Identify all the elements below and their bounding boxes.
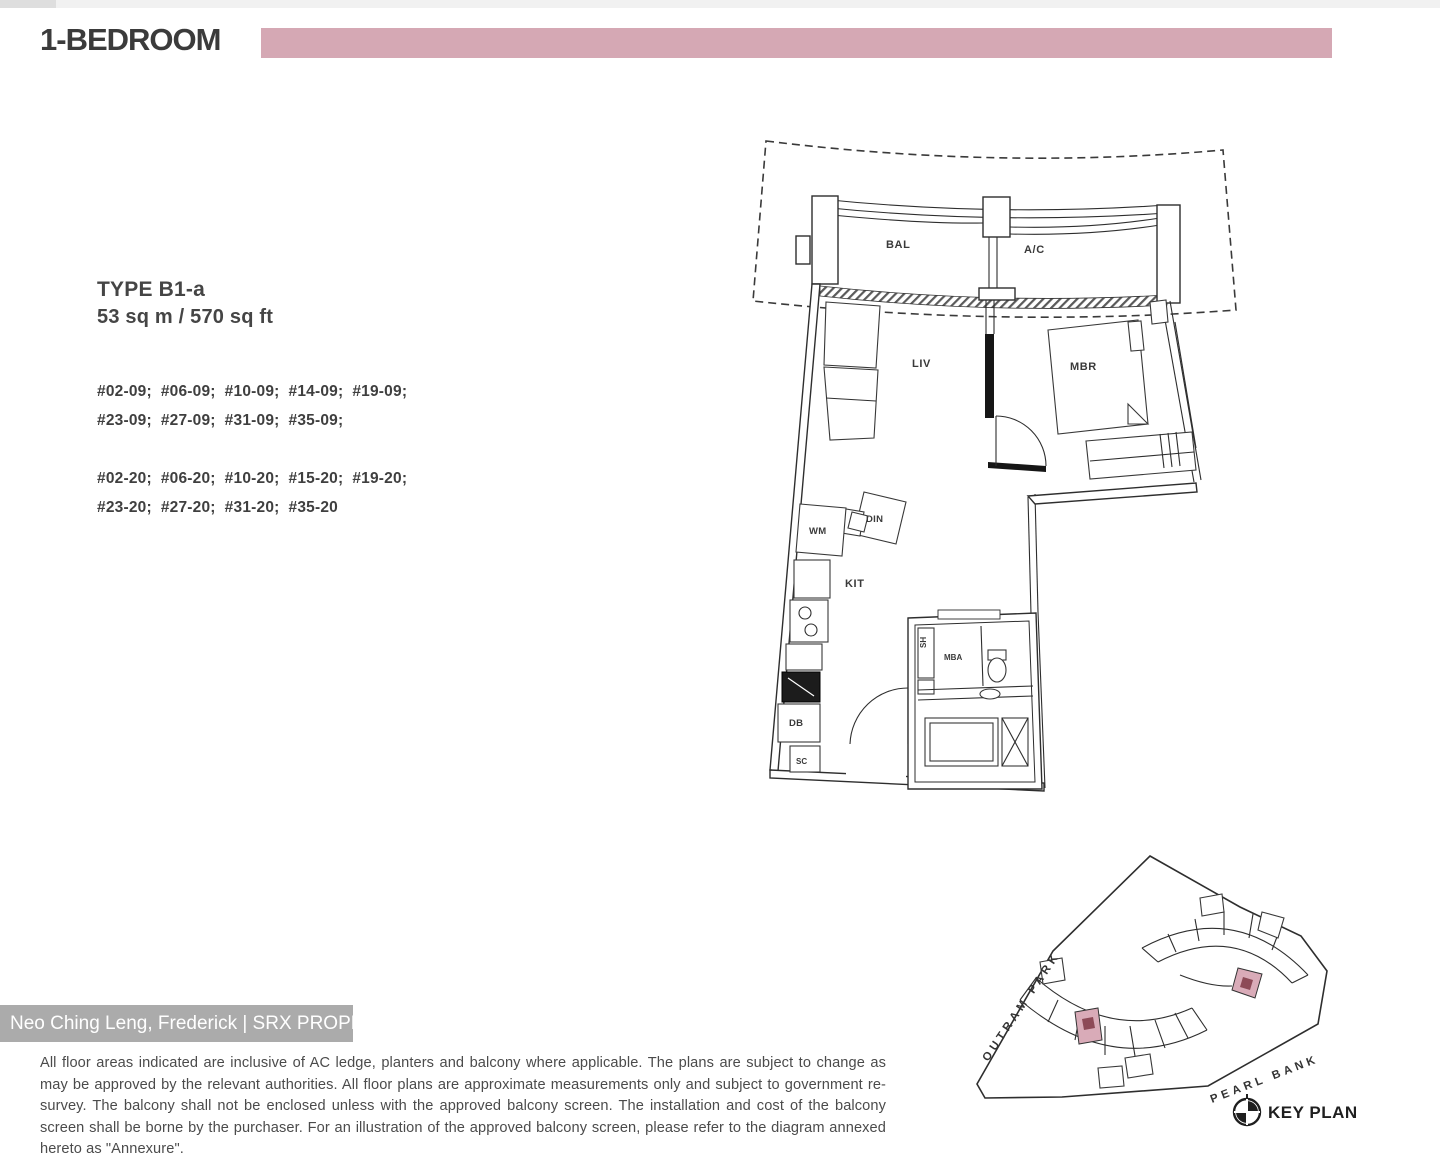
disclaimer-text: All floor areas indicated are inclusive … — [40, 1053, 886, 1161]
room-label-liv: LIV — [912, 358, 931, 370]
shaft-box — [1002, 718, 1028, 766]
room-label-kit: KIT — [845, 578, 865, 590]
floorplan-page: { "header": { "title": "1-BEDROOM" }, "u… — [0, 0, 1440, 1143]
room-label-mba: MBA — [944, 653, 962, 662]
room-label-ac: A/C — [1024, 244, 1045, 256]
key-plan-label: KEY PLAN — [1268, 1103, 1358, 1122]
room-label-din: DIN — [866, 514, 883, 525]
sofa — [824, 302, 880, 368]
room-label-wm: WM — [809, 526, 826, 537]
compass-icon — [1234, 1094, 1260, 1125]
tower-b-footprint — [1142, 894, 1308, 998]
site-boundary — [977, 856, 1327, 1098]
room-label-db: DB — [789, 718, 803, 729]
unit-floor-plan: BAL A/C LIV MBR WM DIN KIT DB SC SH MBA — [753, 141, 1236, 791]
highlighted-unit-stack-09-core — [1082, 1017, 1095, 1030]
floor-plan-drawing: BAL A/C LIV MBR WM DIN KIT DB SC SH MBA — [0, 0, 1440, 1143]
fridge — [794, 560, 830, 598]
room-label-mbr: MBR — [1070, 361, 1097, 373]
bathroom — [908, 610, 1042, 789]
shower — [918, 628, 934, 678]
room-label-sc: SC — [796, 757, 807, 766]
street-label-outram-park: OUTRAM PARK — [981, 950, 1063, 1064]
agent-watermark: Neo Ching Leng, Frederick | SRX PROPERTY — [0, 1005, 353, 1042]
key-plan: OUTRAM PARK PEARL BANK KEY PLAN — [977, 856, 1358, 1125]
basin — [980, 689, 1000, 699]
street-label-pearl-bank: PEARL BANK — [1209, 1053, 1321, 1105]
wardrobe — [1086, 432, 1196, 479]
room-label-bal: BAL — [886, 239, 910, 251]
room-label-sh: SH — [919, 637, 928, 648]
